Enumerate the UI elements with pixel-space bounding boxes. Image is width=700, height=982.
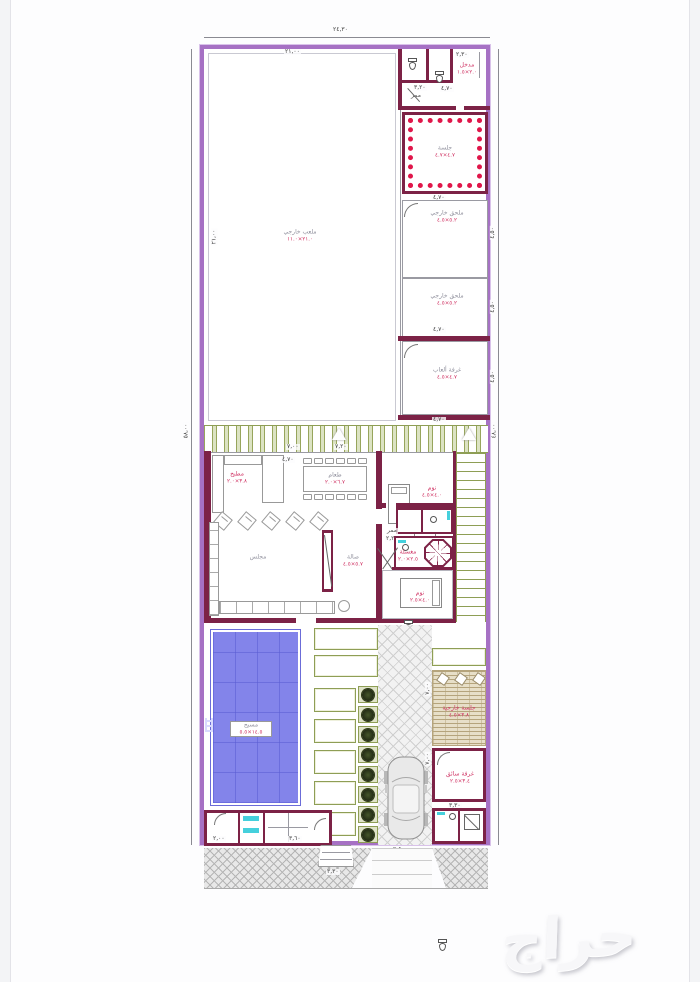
gate-triangle xyxy=(462,428,476,440)
wall xyxy=(398,80,453,83)
tree-icon xyxy=(358,786,378,803)
kitchen-counter xyxy=(212,455,224,513)
street-line xyxy=(204,888,488,889)
swimming-pool xyxy=(211,630,300,805)
dim-right-total: ٤٨,٠٠ xyxy=(491,423,497,440)
chair-icon xyxy=(336,494,345,500)
wall xyxy=(382,452,453,453)
bedroom1-label: نوم ٤.٠×٤.٥ xyxy=(422,485,442,498)
armchair-icon xyxy=(261,511,281,531)
chair-icon xyxy=(314,458,323,464)
fixture-mark xyxy=(398,540,406,543)
planter-bed xyxy=(314,781,356,805)
floor-plan-photo: ٢٤,٣٠ ٥٨,٠٠ ٤٨,٠٠ ٢١,٠٠ ٢١,٠٠ ملعب خارجي… xyxy=(0,0,700,982)
wall xyxy=(479,52,480,78)
chair-icon xyxy=(303,494,312,500)
dim-top-total: ٢٤,٣٠ xyxy=(332,27,349,33)
planter-bed xyxy=(314,688,356,712)
wall xyxy=(316,618,376,623)
dining-label: طعام ٦.٧×٢.٠ xyxy=(325,472,345,485)
entry-room-label: مدخل ٢.٠×١.٥ xyxy=(457,62,477,75)
tree-icon xyxy=(358,726,378,743)
dim-dining-width: ٤,٧٠ xyxy=(281,457,295,463)
salah-label: صالة ٥.٧×٤.٥ xyxy=(343,554,363,567)
pool-ladder-icon xyxy=(205,718,213,732)
apron-line xyxy=(372,874,432,875)
driveway-apron xyxy=(372,848,432,888)
gate-triangle xyxy=(332,428,346,440)
dim-steps: ٣,٣٠ xyxy=(326,869,340,875)
dim-entry-width: ٢,٣٠ xyxy=(455,52,469,58)
wall xyxy=(382,503,386,508)
planter-bed xyxy=(314,719,356,743)
dim-left-total: ٥٨,٠٠ xyxy=(183,423,189,440)
wall xyxy=(426,49,429,82)
dim-games-bottom: ٤,٧٠ xyxy=(432,417,446,423)
annex2-label: ملحق خارجي ٥.٢×٤.٥ xyxy=(430,293,463,306)
tree-column xyxy=(358,686,378,843)
armchair-row xyxy=(216,514,326,528)
dim-annex-side-2: ٤,٥٠ xyxy=(490,300,496,314)
majlis-label: جلسة ٤.٧×٤.٧ xyxy=(435,145,455,158)
annex1-label: ملحق خارجي ٥.٢×٤.٥ xyxy=(430,210,463,223)
fixture-mark xyxy=(447,511,450,520)
dimension-line-right xyxy=(498,49,499,845)
step-line xyxy=(322,852,350,853)
kitchen-label: مطبخ ٣.٨×٢.٠ xyxy=(227,471,247,484)
chair-icon xyxy=(303,458,312,464)
tree-icon xyxy=(358,706,378,723)
dim-annex-side-3: ٤,٥٠ xyxy=(490,370,496,384)
wc-room xyxy=(396,508,453,534)
wall xyxy=(421,510,423,532)
dining-chairs-top xyxy=(303,458,367,464)
pergola-label: جلسة خارجية ٣.٨×٤.٥ xyxy=(442,705,475,718)
jacuzzi-icon xyxy=(424,539,452,567)
chair-icon xyxy=(358,494,367,500)
wall xyxy=(398,106,456,110)
dim-changing-right: ٣,٦٠ xyxy=(288,836,302,842)
sink-icon xyxy=(430,516,437,523)
wall xyxy=(398,49,402,109)
haraj-watermark: حراج xyxy=(501,904,638,974)
dim-changing-left: ٢,٠٠ xyxy=(212,836,226,842)
dim-yard-left: ٢١,٠٠ xyxy=(211,229,217,246)
apron-line xyxy=(372,860,432,861)
pergola-chairs xyxy=(438,674,484,684)
sink-icon xyxy=(449,813,456,820)
fixture-mark xyxy=(437,812,445,815)
dim-corridor-top: ٣,٢٠ xyxy=(413,85,427,91)
dimension-line-top xyxy=(204,37,490,38)
chair-icon xyxy=(314,494,323,500)
armchair-icon xyxy=(237,511,257,531)
dim-drive-side: ٧,٠٠ xyxy=(425,682,431,696)
corridor2-label: ممر xyxy=(386,528,398,535)
bed-pillow xyxy=(432,580,440,606)
armchair-icon xyxy=(309,511,329,531)
dim-yard-top: ٢١,٠٠ xyxy=(284,49,301,55)
toilet-icon xyxy=(435,71,444,84)
planting-strip-right xyxy=(456,453,486,622)
dim-majlis-top: ٤,٧٠ xyxy=(440,86,454,92)
tree-icon xyxy=(358,686,378,703)
bench-mark xyxy=(243,828,259,833)
dim-hall-top: ٧,٠٠ xyxy=(286,444,300,450)
chair-icon xyxy=(436,672,450,686)
entry-steps xyxy=(318,845,354,867)
bench-mark xyxy=(243,816,259,821)
planter-column-top xyxy=(314,628,378,677)
planter-bed-right xyxy=(432,648,486,666)
sofa-left xyxy=(209,522,219,616)
wall xyxy=(211,452,376,453)
dim-annex-bottom: ٤,٧٠ xyxy=(432,327,446,333)
sofa-bottom xyxy=(219,601,335,614)
toilet-icon xyxy=(438,939,447,952)
yard-label: ملعب خارجي ٢١.٠×١١.٠ xyxy=(283,229,316,242)
wall xyxy=(263,812,265,844)
armchair-icon xyxy=(285,511,305,531)
chair-icon xyxy=(454,672,468,686)
dim-hall-top2: ٧,٢٠ xyxy=(334,444,348,450)
laundry-label: مغسلة ٢.٥×٢.٠ xyxy=(398,549,418,562)
step-line xyxy=(320,859,352,860)
pool-label: مسبح ١٤.٥×٥.٥ xyxy=(240,722,263,735)
car-icon xyxy=(383,755,429,841)
wall xyxy=(458,810,460,842)
chair-icon xyxy=(472,672,486,686)
tree-icon xyxy=(358,806,378,823)
wall xyxy=(376,451,382,509)
bedroom2-label: نوم ٤.٠×٢.٥ xyxy=(410,590,430,603)
dim-annex-side: ٤,٥٠ xyxy=(490,226,496,240)
toilet-icon xyxy=(408,58,417,71)
driver-room-label: غرفة سائق ٣.٤×٢.٥ xyxy=(446,771,474,784)
games-label: غرفة ألعاب ٤.٧×٤.٥ xyxy=(433,367,461,380)
planter-bed xyxy=(314,628,378,650)
chair-icon xyxy=(325,494,334,500)
wall xyxy=(238,812,240,844)
hall-label: مجلس xyxy=(250,555,267,562)
chair-icon xyxy=(347,494,356,500)
planter-bed xyxy=(314,655,378,677)
tree-icon xyxy=(358,746,378,763)
chair-icon xyxy=(347,458,356,464)
wall xyxy=(204,618,296,623)
kitchen-counter xyxy=(224,455,262,465)
chair-icon xyxy=(325,458,334,464)
wall xyxy=(450,49,453,82)
dimension-line-left xyxy=(191,49,192,845)
chair-icon xyxy=(358,458,367,464)
tree-icon xyxy=(358,766,378,783)
wall xyxy=(464,106,490,110)
planter-bed xyxy=(314,750,356,774)
side-table xyxy=(338,600,350,612)
chair-icon xyxy=(336,458,345,464)
tree-icon xyxy=(358,826,378,843)
dining-chairs-bottom xyxy=(303,494,367,500)
